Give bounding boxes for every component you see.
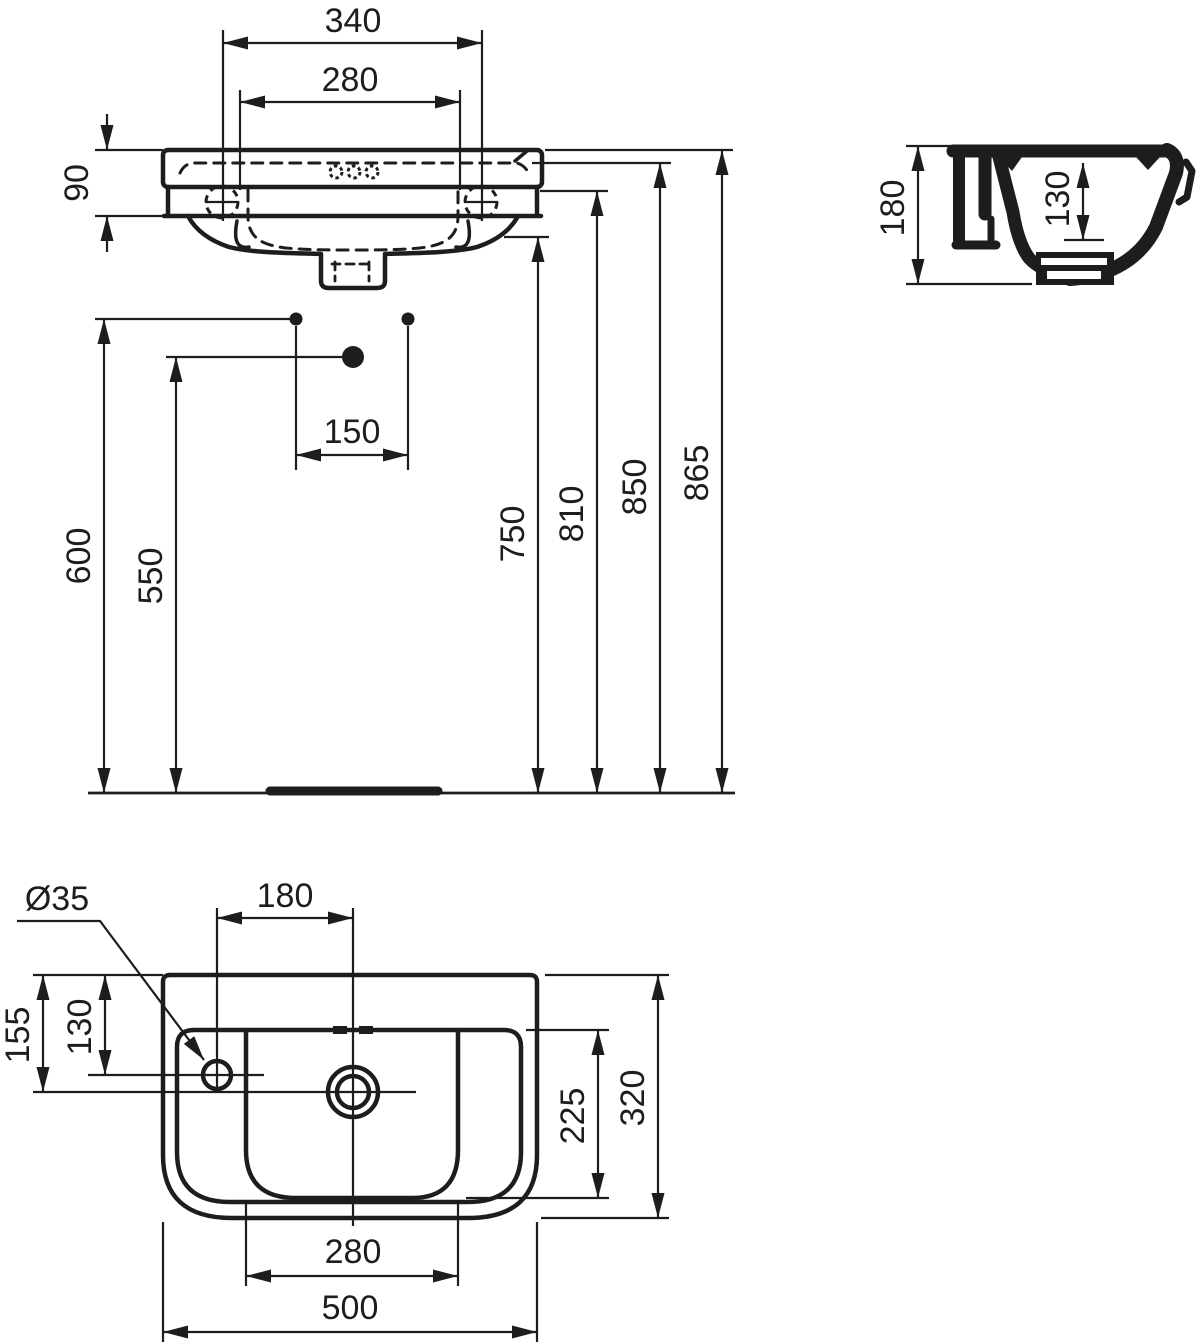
ext-lines-340 xyxy=(223,30,482,221)
dim-label-front-865: 865 xyxy=(678,445,716,502)
dim-label-plan-500: 500 xyxy=(322,1289,379,1327)
side-drain-slot-lower xyxy=(1047,271,1101,279)
side-view: 180 130 xyxy=(874,146,1192,285)
dim-label-front-340: 340 xyxy=(325,2,382,40)
front-bowl-dashed xyxy=(248,190,458,250)
dim-label-plan-280: 280 xyxy=(325,1233,382,1271)
dim-label-front-750: 750 xyxy=(494,506,532,563)
dim-label-plan-225: 225 xyxy=(554,1088,592,1145)
side-bowl-step-right xyxy=(1136,157,1160,170)
dim-label-front-600: 600 xyxy=(60,528,98,585)
side-drain-boss xyxy=(1036,252,1114,285)
washbasin-technical-drawing: 340 280 90 150 600 550 750 810 850 xyxy=(0,0,1200,1342)
overflow-hole-icon xyxy=(348,166,360,178)
dim-label-front-810: 810 xyxy=(553,486,591,543)
overflow-hole-icon xyxy=(366,166,378,178)
dim-label-side-180: 180 xyxy=(874,180,912,237)
ext-lines-90 xyxy=(95,150,165,216)
dim-label-front-850: 850 xyxy=(616,459,654,516)
dim-label-plan-180: 180 xyxy=(257,877,314,915)
dim-label-front-90: 90 xyxy=(58,164,96,202)
side-drain-slot-upper xyxy=(1041,258,1107,265)
front-rim-edge-tick xyxy=(515,151,527,161)
dim-label-side-130: 130 xyxy=(1039,171,1077,228)
front-overflow-holes xyxy=(330,166,378,178)
wall-fixing-point-left xyxy=(290,313,303,326)
front-bolt-boss-left-right xyxy=(236,221,470,247)
technical-drawing-canvas: 340 280 90 150 600 550 750 810 850 xyxy=(0,0,1200,1342)
wall-outlet-point xyxy=(342,346,364,368)
dim-label-front-150: 150 xyxy=(324,413,381,451)
dim-label-plan-320: 320 xyxy=(614,1070,652,1127)
front-view: 340 280 90 150 600 550 750 810 850 xyxy=(58,2,735,793)
dim-label-plan-155: 155 xyxy=(0,1007,37,1064)
front-trap-dashed xyxy=(332,262,372,281)
dim-label-plan-130: 130 xyxy=(61,999,99,1056)
front-rim-outline xyxy=(163,150,542,187)
wall-fixing-point-right xyxy=(402,313,415,326)
plan-view: Ø35 180 155 130 225 320 280 500 xyxy=(0,877,669,1342)
dim-label-front-550: 550 xyxy=(132,548,170,605)
dim-label-plan-dia35: Ø35 xyxy=(25,880,89,918)
overflow-hole-icon xyxy=(330,166,342,178)
dim-label-front-280: 280 xyxy=(322,61,379,99)
plan-outer-outline xyxy=(163,975,537,1218)
